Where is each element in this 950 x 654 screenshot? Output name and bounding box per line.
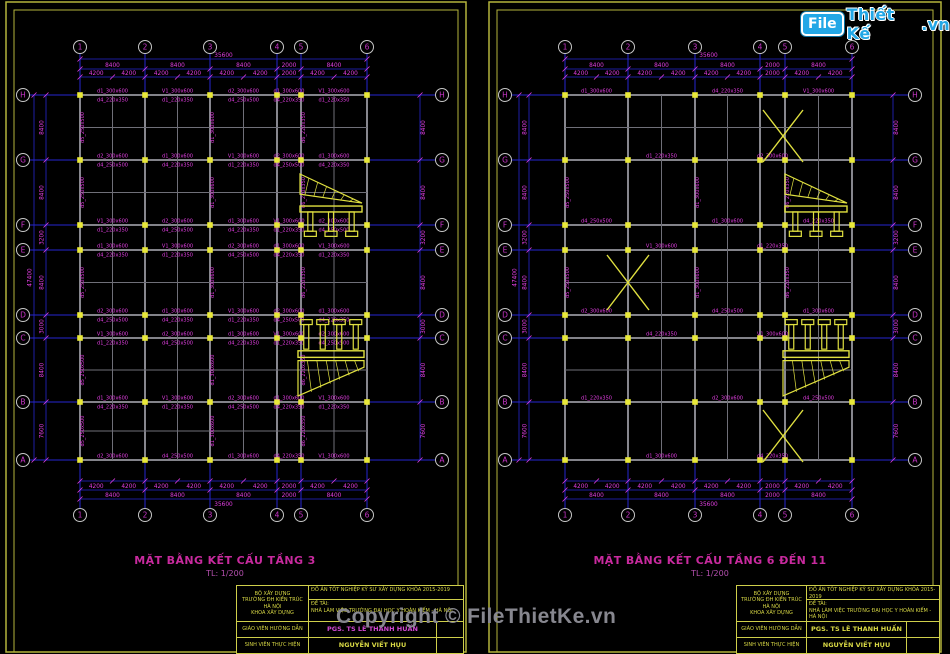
beam-labels: d1_300x600d4_220x350V1_300x600d1_220x350… bbox=[80, 89, 350, 460]
svg-text:4200: 4200 bbox=[605, 484, 620, 490]
svg-text:d2_300x600: d2_300x600 bbox=[274, 154, 305, 160]
svg-text:d1_300x600: d1_300x600 bbox=[228, 219, 259, 225]
svg-text:6: 6 bbox=[365, 43, 370, 52]
svg-text:d4_220x350: d4_220x350 bbox=[319, 163, 350, 169]
svg-text:8400: 8400 bbox=[327, 493, 342, 499]
svg-text:d1_300x600: d1_300x600 bbox=[162, 154, 193, 160]
svg-text:V1_300x600: V1_300x600 bbox=[97, 332, 128, 338]
project-cell: ĐỒ ÁN TỐT NGHIỆP KỸ SƯ XÂY DỰNG KHÓA 201… bbox=[807, 586, 939, 600]
svg-text:2000: 2000 bbox=[282, 63, 297, 69]
svg-text:8400: 8400 bbox=[811, 493, 826, 499]
svg-text:d1_300x600: d1_300x600 bbox=[97, 396, 128, 402]
svg-text:1: 1 bbox=[563, 43, 568, 52]
svg-text:d4_250x500: d4_250x500 bbox=[162, 341, 193, 347]
svg-text:V1_300x600: V1_300x600 bbox=[273, 332, 304, 338]
svg-text:D: D bbox=[20, 311, 26, 320]
svg-text:V1_300x600: V1_300x600 bbox=[318, 244, 349, 250]
svg-text:E: E bbox=[21, 246, 26, 255]
svg-text:d1_220x350: d1_220x350 bbox=[97, 228, 128, 234]
svg-text:V1_300x600: V1_300x600 bbox=[803, 89, 834, 95]
student-extra-cell bbox=[437, 637, 463, 653]
svg-text:8400: 8400 bbox=[327, 63, 342, 69]
svg-text:4200: 4200 bbox=[828, 71, 843, 77]
svg-text:1: 1 bbox=[563, 511, 568, 520]
svg-text:2000: 2000 bbox=[282, 71, 297, 77]
svg-text:d1_220x350: d1_220x350 bbox=[274, 228, 305, 234]
svg-text:d5_250x500: d5_250x500 bbox=[80, 355, 86, 386]
svg-text:d4_250x500: d4_250x500 bbox=[274, 163, 305, 169]
student-name: NGUYỄN VIẾT HỤU bbox=[807, 637, 907, 653]
svg-text:F: F bbox=[913, 221, 917, 230]
svg-text:3: 3 bbox=[693, 43, 698, 52]
svg-text:8400: 8400 bbox=[523, 120, 529, 135]
svg-text:8400: 8400 bbox=[811, 63, 826, 69]
beams bbox=[565, 95, 852, 460]
stair-details bbox=[298, 174, 364, 396]
svg-text:d4_220x350: d4_220x350 bbox=[274, 253, 305, 259]
svg-text:4200: 4200 bbox=[186, 484, 201, 490]
svg-text:G: G bbox=[439, 156, 445, 165]
svg-text:d6_220x350: d6_220x350 bbox=[301, 112, 307, 143]
svg-text:8400: 8400 bbox=[720, 493, 735, 499]
svg-text:V1_300x600: V1_300x600 bbox=[318, 396, 349, 402]
org-cell: BỘ XÂY DỰNG TRƯỜNG ĐH KIẾN TRÚC HÀ NỘI K… bbox=[237, 586, 309, 621]
svg-text:8400: 8400 bbox=[421, 185, 427, 200]
svg-text:B: B bbox=[912, 398, 917, 407]
svg-text:H: H bbox=[912, 91, 918, 100]
svg-text:1: 1 bbox=[78, 43, 83, 52]
sheet-0: 8400840084002000840042004200420042004200… bbox=[6, 2, 466, 652]
svg-text:d6_220x350: d6_220x350 bbox=[301, 177, 307, 208]
svg-text:V1_300x600: V1_300x600 bbox=[318, 89, 349, 95]
svg-text:V1_300x600: V1_300x600 bbox=[318, 454, 349, 460]
svg-text:d2_300x600: d2_300x600 bbox=[97, 309, 128, 315]
svg-text:4200: 4200 bbox=[343, 484, 358, 490]
svg-text:d5_250x500: d5_250x500 bbox=[565, 177, 571, 208]
svg-text:d1_300x600: d1_300x600 bbox=[646, 454, 677, 460]
svg-text:V1_300x600: V1_300x600 bbox=[273, 219, 304, 225]
student-label: SINH VIÊN THỰC HIỆN bbox=[237, 637, 309, 653]
svg-text:d1_220x350: d1_220x350 bbox=[228, 318, 259, 324]
svg-text:G: G bbox=[20, 156, 26, 165]
svg-text:d1_300x600: d1_300x600 bbox=[210, 267, 216, 298]
svg-text:35600: 35600 bbox=[214, 53, 233, 59]
svg-text:4200: 4200 bbox=[343, 71, 358, 77]
advisor-label: GIÁO VIÊN HƯỚNG DẪN bbox=[737, 621, 807, 637]
svg-text:d1_220x350: d1_220x350 bbox=[319, 405, 350, 411]
svg-text:C: C bbox=[912, 334, 917, 343]
svg-text:d1_220x350: d1_220x350 bbox=[646, 154, 677, 160]
svg-text:3: 3 bbox=[208, 511, 213, 520]
svg-text:4200: 4200 bbox=[637, 71, 652, 77]
svg-text:H: H bbox=[439, 91, 445, 100]
axis-grid bbox=[30, 54, 435, 508]
svg-text:d4_220x350: d4_220x350 bbox=[97, 253, 128, 259]
svg-text:d1_300x600: d1_300x600 bbox=[210, 112, 216, 143]
svg-text:4200: 4200 bbox=[310, 71, 325, 77]
stair-details bbox=[783, 174, 849, 396]
svg-text:H: H bbox=[20, 91, 26, 100]
svg-text:d4_220x350: d4_220x350 bbox=[97, 405, 128, 411]
svg-text:4200: 4200 bbox=[736, 484, 751, 490]
svg-text:B: B bbox=[439, 398, 444, 407]
svg-text:d4_250x500: d4_250x500 bbox=[228, 253, 259, 259]
svg-text:d2_300x600: d2_300x600 bbox=[319, 332, 350, 338]
svg-text:4200: 4200 bbox=[219, 484, 234, 490]
svg-text:d1_300x600: d1_300x600 bbox=[210, 177, 216, 208]
svg-text:6: 6 bbox=[850, 511, 855, 520]
svg-text:7600: 7600 bbox=[421, 423, 427, 438]
cad-viewport: 8400840084002000840042004200420042004200… bbox=[0, 0, 950, 654]
svg-text:A: A bbox=[439, 456, 445, 465]
svg-text:d4_220x350: d4_220x350 bbox=[274, 98, 305, 104]
svg-text:d2_300x600: d2_300x600 bbox=[228, 244, 259, 250]
svg-text:d1_220x350: d1_220x350 bbox=[581, 396, 612, 402]
svg-text:d1_300x600: d1_300x600 bbox=[210, 416, 216, 447]
svg-text:3: 3 bbox=[693, 511, 698, 520]
svg-text:8400: 8400 bbox=[523, 275, 529, 290]
svg-text:8400: 8400 bbox=[105, 63, 120, 69]
svg-text:d6_220x350: d6_220x350 bbox=[785, 177, 791, 208]
svg-text:d4_220x350: d4_220x350 bbox=[228, 341, 259, 347]
svg-text:d1_300x600: d1_300x600 bbox=[695, 267, 701, 298]
sheet-1: 8400840084002000840042004200420042004200… bbox=[489, 2, 941, 652]
svg-text:d1_300x600: d1_300x600 bbox=[97, 89, 128, 95]
svg-text:3000: 3000 bbox=[894, 319, 900, 334]
svg-text:d4_220x350: d4_220x350 bbox=[162, 163, 193, 169]
svg-text:8400: 8400 bbox=[421, 362, 427, 377]
svg-text:C: C bbox=[439, 334, 444, 343]
svg-text:E: E bbox=[503, 246, 508, 255]
svg-text:d1_300x600: d1_300x600 bbox=[274, 244, 305, 250]
svg-text:G: G bbox=[912, 156, 918, 165]
svg-text:8400: 8400 bbox=[40, 120, 46, 135]
svg-text:d1_300x600: d1_300x600 bbox=[695, 177, 701, 208]
svg-text:d4_220x350: d4_220x350 bbox=[97, 98, 128, 104]
svg-text:3200: 3200 bbox=[421, 230, 427, 245]
svg-text:d1_300x600: d1_300x600 bbox=[319, 154, 350, 160]
svg-text:5: 5 bbox=[299, 43, 304, 52]
svg-text:4200: 4200 bbox=[704, 484, 719, 490]
svg-text:2000: 2000 bbox=[282, 493, 297, 499]
svg-text:4200: 4200 bbox=[671, 71, 686, 77]
title-block-left: BỘ XÂY DỰNG TRƯỜNG ĐH KIẾN TRÚC HÀ NỘI K… bbox=[236, 585, 464, 654]
svg-text:A: A bbox=[912, 456, 918, 465]
svg-text:4200: 4200 bbox=[671, 484, 686, 490]
svg-text:d1_300x600: d1_300x600 bbox=[210, 355, 216, 386]
svg-text:d4_250x500: d4_250x500 bbox=[97, 318, 128, 324]
svg-text:d6_220x350: d6_220x350 bbox=[301, 267, 307, 298]
svg-text:d1_220x350: d1_220x350 bbox=[228, 163, 259, 169]
svg-text:3000: 3000 bbox=[421, 319, 427, 334]
svg-text:V1_300x600: V1_300x600 bbox=[162, 396, 193, 402]
svg-text:8400: 8400 bbox=[421, 275, 427, 290]
svg-text:47400: 47400 bbox=[513, 268, 519, 287]
svg-text:8400: 8400 bbox=[720, 63, 735, 69]
svg-text:8400: 8400 bbox=[170, 493, 185, 499]
svg-text:d1_300x600: d1_300x600 bbox=[162, 309, 193, 315]
svg-text:d1_220x350: d1_220x350 bbox=[319, 253, 350, 259]
svg-text:V1_300x600: V1_300x600 bbox=[646, 244, 677, 250]
svg-text:V1_300x600: V1_300x600 bbox=[97, 219, 128, 225]
svg-text:d4_250x500: d4_250x500 bbox=[319, 341, 350, 347]
svg-text:V1_300x600: V1_300x600 bbox=[228, 154, 259, 160]
svg-text:C: C bbox=[502, 334, 507, 343]
svg-text:H: H bbox=[502, 91, 508, 100]
svg-text:d5_250x500: d5_250x500 bbox=[80, 177, 86, 208]
axis-grid bbox=[512, 54, 908, 508]
sheet-border bbox=[489, 2, 941, 652]
svg-text:d1_300x600: d1_300x600 bbox=[274, 89, 305, 95]
svg-text:2000: 2000 bbox=[282, 484, 297, 490]
advisor-extra-cell bbox=[907, 621, 939, 637]
svg-text:8400: 8400 bbox=[894, 275, 900, 290]
svg-text:4200: 4200 bbox=[605, 71, 620, 77]
svg-text:d2_300x600: d2_300x600 bbox=[162, 332, 193, 338]
svg-text:2: 2 bbox=[626, 511, 631, 520]
svg-text:8400: 8400 bbox=[894, 120, 900, 135]
svg-text:V1_300x600: V1_300x600 bbox=[162, 244, 193, 250]
svg-text:8400: 8400 bbox=[421, 120, 427, 135]
svg-text:d1_220x350: d1_220x350 bbox=[162, 405, 193, 411]
svg-text:5: 5 bbox=[783, 511, 788, 520]
svg-text:4200: 4200 bbox=[637, 484, 652, 490]
student-extra-cell bbox=[907, 637, 939, 653]
svg-text:d1_220x350: d1_220x350 bbox=[757, 244, 788, 250]
org-cell: BỘ XÂY DỰNG TRƯỜNG ĐH KIẾN TRÚC HÀ NỘI K… bbox=[737, 586, 807, 621]
svg-text:8400: 8400 bbox=[40, 185, 46, 200]
svg-text:8400: 8400 bbox=[894, 362, 900, 377]
svg-text:7600: 7600 bbox=[894, 423, 900, 438]
svg-text:4200: 4200 bbox=[219, 71, 234, 77]
svg-text:8400: 8400 bbox=[170, 63, 185, 69]
svg-text:G: G bbox=[502, 156, 508, 165]
svg-text:d4_220x350: d4_220x350 bbox=[274, 454, 305, 460]
svg-text:4200: 4200 bbox=[573, 71, 588, 77]
svg-text:d6_220x350: d6_220x350 bbox=[301, 355, 307, 386]
svg-text:4: 4 bbox=[758, 43, 763, 52]
svg-text:8400: 8400 bbox=[654, 493, 669, 499]
student-label: SINH VIÊN THỰC HIỆN bbox=[737, 637, 807, 653]
svg-text:B: B bbox=[502, 398, 507, 407]
svg-text:d1_300x600: d1_300x600 bbox=[581, 89, 612, 95]
svg-text:D: D bbox=[439, 311, 445, 320]
svg-text:8400: 8400 bbox=[105, 493, 120, 499]
advisor-name: PGS. TS LÊ THANH HUẤN bbox=[807, 621, 907, 637]
svg-text:d4_250x500: d4_250x500 bbox=[712, 309, 743, 315]
logo-tld-text: .vn bbox=[921, 15, 950, 34]
svg-text:7600: 7600 bbox=[523, 423, 529, 438]
svg-text:2000: 2000 bbox=[765, 63, 780, 69]
svg-text:d4_250x500: d4_250x500 bbox=[228, 405, 259, 411]
svg-text:d1_220x350: d1_220x350 bbox=[274, 341, 305, 347]
svg-text:4200: 4200 bbox=[573, 484, 588, 490]
svg-text:d1_300x600: d1_300x600 bbox=[803, 309, 834, 315]
svg-text:V1_300x600: V1_300x600 bbox=[757, 332, 788, 338]
svg-text:d4_220x350: d4_220x350 bbox=[646, 332, 677, 338]
svg-text:8400: 8400 bbox=[236, 493, 251, 499]
beam-labels: d1_300x600d4_220x350V1_300x600d1_220x350… bbox=[565, 89, 834, 460]
svg-text:7600: 7600 bbox=[40, 423, 46, 438]
student-name: NGUYỄN VIẾT HỤU bbox=[309, 637, 437, 653]
svg-text:D: D bbox=[912, 311, 918, 320]
svg-text:A: A bbox=[502, 456, 508, 465]
svg-text:d2_300x600: d2_300x600 bbox=[162, 219, 193, 225]
svg-text:1: 1 bbox=[78, 511, 83, 520]
svg-text:d4_250x500: d4_250x500 bbox=[97, 163, 128, 169]
svg-text:8400: 8400 bbox=[40, 275, 46, 290]
svg-text:2: 2 bbox=[143, 43, 148, 52]
svg-text:3000: 3000 bbox=[40, 319, 46, 334]
svg-text:d5_250x500: d5_250x500 bbox=[565, 267, 571, 298]
svg-text:4: 4 bbox=[275, 511, 280, 520]
svg-text:C: C bbox=[20, 334, 25, 343]
svg-text:4200: 4200 bbox=[121, 71, 136, 77]
svg-text:d1_300x600: d1_300x600 bbox=[274, 396, 305, 402]
svg-text:d4_250x500: d4_250x500 bbox=[162, 454, 193, 460]
svg-text:d4_250x500: d4_250x500 bbox=[228, 98, 259, 104]
svg-text:d1_220x350: d1_220x350 bbox=[319, 98, 350, 104]
svg-text:2: 2 bbox=[626, 43, 631, 52]
svg-text:d4_220x350: d4_220x350 bbox=[274, 405, 305, 411]
svg-text:d5_250x500: d5_250x500 bbox=[80, 267, 86, 298]
svg-text:4200: 4200 bbox=[121, 484, 136, 490]
svg-text:F: F bbox=[21, 221, 25, 230]
svg-text:d4_250x500: d4_250x500 bbox=[803, 396, 834, 402]
svg-text:4200: 4200 bbox=[704, 71, 719, 77]
svg-text:8400: 8400 bbox=[894, 185, 900, 200]
svg-text:d5_250x500: d5_250x500 bbox=[80, 112, 86, 143]
svg-text:3: 3 bbox=[208, 43, 213, 52]
svg-text:3000: 3000 bbox=[523, 319, 529, 334]
svg-text:2: 2 bbox=[143, 511, 148, 520]
project-cell: ĐỒ ÁN TỐT NGHIỆP KỸ SƯ XÂY DỰNG KHÓA 201… bbox=[309, 586, 463, 600]
svg-text:d4_220x350: d4_220x350 bbox=[162, 318, 193, 324]
svg-text:d1_220x350: d1_220x350 bbox=[162, 253, 193, 259]
filethietke-logo[interactable]: File Thiết Kế .vn bbox=[801, 5, 950, 43]
svg-text:F: F bbox=[440, 221, 444, 230]
topic-cell: ĐỀ TÀI: NHÀ LÀM VIỆC TRƯỜNG ĐẠI HỌC Y HO… bbox=[309, 600, 463, 621]
svg-text:4200: 4200 bbox=[794, 484, 809, 490]
svg-text:2000: 2000 bbox=[765, 493, 780, 499]
svg-text:4200: 4200 bbox=[154, 71, 169, 77]
svg-text:35600: 35600 bbox=[699, 502, 718, 508]
svg-text:d4_220x350: d4_220x350 bbox=[712, 89, 743, 95]
svg-text:V1_300x600: V1_300x600 bbox=[228, 309, 259, 315]
svg-text:6: 6 bbox=[850, 43, 855, 52]
svg-text:F: F bbox=[503, 221, 507, 230]
svg-text:E: E bbox=[913, 246, 918, 255]
svg-text:d4_250x500: d4_250x500 bbox=[162, 228, 193, 234]
columns bbox=[562, 92, 855, 463]
svg-text:4200: 4200 bbox=[253, 71, 268, 77]
axis-bubbles: 112233445566HHGGFFEEDDCCBBAA bbox=[499, 41, 922, 522]
advisor-name: PGS. TS LÊ THANH HUẤN bbox=[309, 621, 437, 637]
svg-text:35600: 35600 bbox=[699, 53, 718, 59]
svg-text:d1_300x600: d1_300x600 bbox=[712, 219, 743, 225]
svg-text:d4_250x500: d4_250x500 bbox=[581, 219, 612, 225]
svg-text:2000: 2000 bbox=[765, 71, 780, 77]
svg-text:V1_300x600: V1_300x600 bbox=[162, 89, 193, 95]
x-braces bbox=[607, 110, 803, 462]
svg-text:8400: 8400 bbox=[236, 63, 251, 69]
svg-text:d1_300x600: d1_300x600 bbox=[319, 309, 350, 315]
svg-text:d6_220x350: d6_220x350 bbox=[301, 416, 307, 447]
svg-text:4200: 4200 bbox=[828, 484, 843, 490]
logo-folder-icon: File bbox=[801, 12, 844, 36]
svg-text:d2_300x600: d2_300x600 bbox=[274, 309, 305, 315]
svg-text:8400: 8400 bbox=[589, 63, 604, 69]
svg-text:4: 4 bbox=[758, 511, 763, 520]
svg-text:d2_300x600: d2_300x600 bbox=[712, 396, 743, 402]
svg-text:47400: 47400 bbox=[28, 268, 34, 287]
svg-text:4: 4 bbox=[275, 43, 280, 52]
topic-cell: ĐỀ TÀI: NHÀ LÀM VIỆC TRƯỜNG ĐẠI HỌC Y HO… bbox=[807, 600, 939, 621]
svg-text:d2_300x600: d2_300x600 bbox=[228, 89, 259, 95]
advisor-extra-cell bbox=[437, 621, 463, 637]
svg-text:D: D bbox=[502, 311, 508, 320]
svg-text:2000: 2000 bbox=[765, 484, 780, 490]
svg-text:d4_220x350: d4_220x350 bbox=[757, 454, 788, 460]
svg-text:A: A bbox=[20, 456, 26, 465]
svg-text:35600: 35600 bbox=[214, 502, 233, 508]
svg-text:8400: 8400 bbox=[40, 362, 46, 377]
svg-text:4200: 4200 bbox=[310, 484, 325, 490]
svg-text:d1_300x600: d1_300x600 bbox=[228, 332, 259, 338]
svg-text:d2_300x600: d2_300x600 bbox=[97, 154, 128, 160]
svg-text:d1_300x600: d1_300x600 bbox=[228, 454, 259, 460]
svg-text:3200: 3200 bbox=[894, 230, 900, 245]
svg-text:3200: 3200 bbox=[523, 230, 529, 245]
advisor-label: GIÁO VIÊN HƯỚNG DẪN bbox=[237, 621, 309, 637]
svg-text:B: B bbox=[20, 398, 25, 407]
svg-text:d1_220x350: d1_220x350 bbox=[97, 341, 128, 347]
svg-text:4200: 4200 bbox=[186, 71, 201, 77]
svg-text:8400: 8400 bbox=[523, 185, 529, 200]
svg-text:5: 5 bbox=[783, 43, 788, 52]
svg-text:4200: 4200 bbox=[89, 484, 104, 490]
svg-text:d1_300x600: d1_300x600 bbox=[97, 244, 128, 250]
structural-plan-drawing: 8400840084002000840042004200420042004200… bbox=[0, 0, 950, 654]
svg-text:E: E bbox=[440, 246, 445, 255]
svg-text:4200: 4200 bbox=[794, 71, 809, 77]
svg-text:4200: 4200 bbox=[89, 71, 104, 77]
svg-text:d5_250x500: d5_250x500 bbox=[80, 416, 86, 447]
svg-text:3200: 3200 bbox=[40, 230, 46, 245]
title-block-right: BỘ XÂY DỰNG TRƯỜNG ĐH KIẾN TRÚC HÀ NỘI K… bbox=[736, 585, 940, 654]
svg-text:d1_220x350: d1_220x350 bbox=[162, 98, 193, 104]
svg-text:d2_300x600: d2_300x600 bbox=[228, 396, 259, 402]
svg-text:d6_220x350: d6_220x350 bbox=[785, 267, 791, 298]
svg-text:4200: 4200 bbox=[736, 71, 751, 77]
svg-text:d2_300x600: d2_300x600 bbox=[97, 454, 128, 460]
svg-text:4200: 4200 bbox=[154, 484, 169, 490]
svg-text:8400: 8400 bbox=[523, 362, 529, 377]
logo-brand-text: Thiết Kế bbox=[847, 5, 921, 43]
svg-text:8400: 8400 bbox=[589, 493, 604, 499]
svg-text:6: 6 bbox=[365, 511, 370, 520]
svg-text:4200: 4200 bbox=[253, 484, 268, 490]
svg-text:8400: 8400 bbox=[654, 63, 669, 69]
svg-text:5: 5 bbox=[299, 511, 304, 520]
svg-text:d2_300x600: d2_300x600 bbox=[757, 154, 788, 160]
svg-text:d4_220x350: d4_220x350 bbox=[228, 228, 259, 234]
